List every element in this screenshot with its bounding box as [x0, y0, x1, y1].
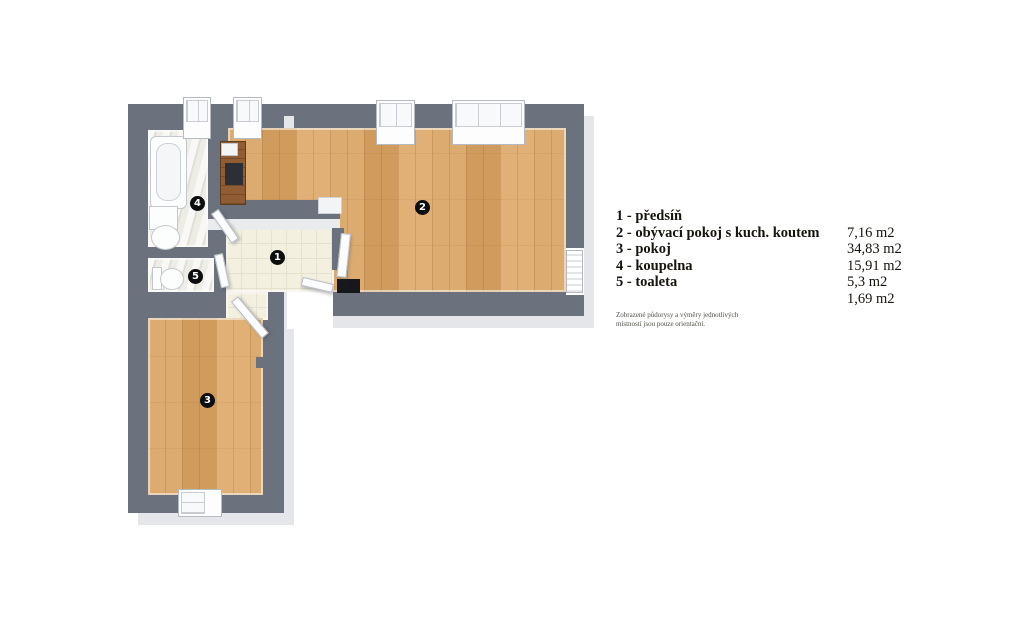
- bathtub-basin: [156, 143, 181, 201]
- window-glass: [379, 103, 412, 127]
- bathroom-sink: [151, 225, 180, 250]
- cooktop: [225, 163, 243, 185]
- legend-disclaimer-line2: místností jsou pouze orientační.: [616, 320, 926, 329]
- room-badge-1: 1: [270, 250, 285, 265]
- legend: 1 - předsíň 2 - obývací pokoj s kuch. ko…: [616, 208, 926, 329]
- kitchen-sink: [221, 143, 238, 156]
- legend-room-area: 1,69 m2: [847, 291, 895, 308]
- legend-row: 4 - koupelna 15,91 m2: [616, 258, 926, 275]
- doormat: [337, 279, 360, 293]
- legend-row: 3 - pokoj 34,83 m2: [616, 241, 926, 258]
- window-bedroom: [178, 489, 222, 517]
- toilet-bowl: [160, 268, 184, 290]
- legend-room-label: 3 - pokoj: [616, 241, 847, 258]
- legend-room-label: 4 - koupelna: [616, 258, 847, 275]
- legend-room-area: 7,16 m2: [847, 225, 895, 242]
- legend-row: 5 - toaleta 5,3 m2: [616, 274, 926, 291]
- legend-room-area: 15,91 m2: [847, 258, 902, 275]
- room-badge-3: 3: [200, 393, 215, 408]
- room-badge-2: 2: [415, 200, 430, 215]
- window-living-room-small: [376, 100, 415, 145]
- legend-room-label: 2 - obývací pokoj s kuch. koutem: [616, 225, 847, 242]
- room-badge-4: 4: [190, 196, 205, 211]
- wall-room-3-notch: [256, 357, 276, 368]
- wall-room-3-top: [148, 300, 225, 318]
- legend-room-area: 5,3 m2: [847, 274, 887, 291]
- window-glass: [181, 492, 205, 514]
- legend-row: 2 - obývací pokoj s kuch. koutem 7,16 m2: [616, 225, 926, 242]
- radiator: [566, 250, 583, 293]
- legend-row: 1 - předsíň: [616, 208, 926, 225]
- window-living-room-large: [452, 100, 525, 145]
- window-glass: [186, 100, 208, 122]
- legend-room-label: 1 - předsíň: [616, 208, 847, 225]
- room-badge-5: 5: [188, 269, 203, 284]
- window-glass: [455, 103, 522, 127]
- window-glass: [236, 100, 259, 122]
- legend-row: 1,69 m2: [616, 291, 926, 308]
- legend-room-area: 34,83 m2: [847, 241, 902, 258]
- legend-disclaimer-line1: Zobrazené půdorysy a výměry jednotlivých: [616, 311, 926, 320]
- entry-opening: [287, 292, 333, 329]
- window-kitchen: [233, 97, 262, 139]
- legend-room-label: 5 - toaleta: [616, 274, 847, 291]
- wall-end-cap: [318, 197, 342, 214]
- window-bathroom: [183, 97, 211, 139]
- legend-disclaimer: Zobrazené půdorysy a výměry jednotlivých…: [616, 311, 926, 329]
- floorplan-canvas: 1 2 3 4 5 1 - předsíň 2 - obývací pokoj …: [0, 0, 1024, 619]
